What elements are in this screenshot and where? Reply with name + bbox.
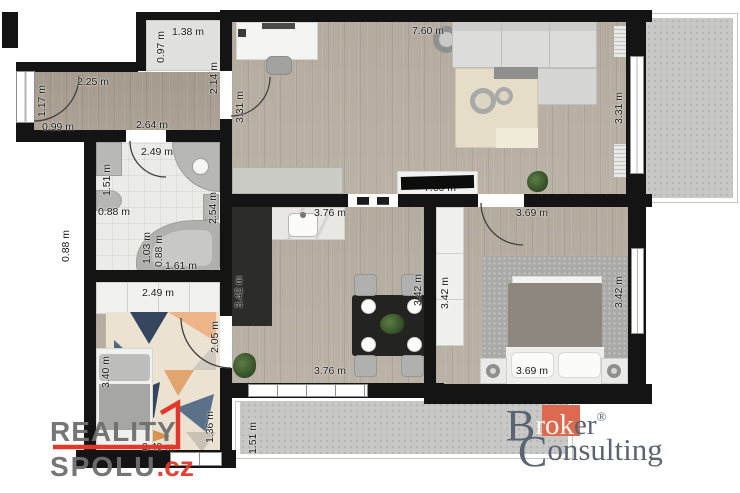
wardrobe-master [436, 206, 464, 346]
entry-door [16, 71, 35, 123]
plant-living [527, 171, 548, 192]
balcony-top-right [646, 14, 737, 202]
passage-kitchen [348, 194, 398, 207]
bathroom-sink [96, 190, 122, 211]
wall-bath-bedroom2 [84, 270, 232, 282]
reality-spolu-logo: REALITY SPOLU.cz [50, 418, 194, 481]
shower-head [192, 158, 209, 175]
bed-blanket [508, 283, 602, 349]
sofa-chaise [537, 68, 597, 105]
dining-chair [354, 274, 377, 296]
table-centerpiece [380, 314, 404, 334]
window-living [630, 56, 644, 174]
wall-stub-topleft [2, 12, 18, 48]
reality-spolu-line1: REALITY [50, 418, 194, 446]
desk-chair [266, 56, 292, 75]
window-bedroom [631, 248, 644, 334]
desk-monitor [262, 23, 295, 29]
broker-consulting-logo: Broker® Consulting [498, 402, 698, 482]
bathroom-washer [203, 194, 219, 220]
kitchen-faucet [300, 212, 306, 218]
registered-mark: ® [597, 410, 607, 423]
storage-room-floor [146, 20, 224, 71]
radiator-bottom [614, 144, 626, 177]
sofa [452, 17, 597, 68]
pillow [558, 352, 601, 378]
plate [407, 299, 422, 314]
wall-bedroom-left [424, 194, 436, 394]
pillow [511, 352, 554, 378]
plant-dining [233, 353, 256, 378]
floor-plan: 1.38 m0.97 m2.25 m1.17 m0.99 m2.64 m2.14… [0, 0, 740, 493]
dining-chair [401, 355, 424, 377]
wall-living-dining [222, 194, 652, 207]
nightstand-lamp [486, 364, 500, 378]
living-cabinet [232, 167, 343, 194]
door-living [220, 71, 232, 119]
reality-spolu-line2: SPOLU.cz [50, 453, 194, 481]
decor-bowl-large [470, 88, 496, 114]
nightstand-lamp [607, 364, 621, 378]
dining-chair [354, 355, 377, 377]
wall-bathroom-top-left [16, 130, 126, 142]
coffee-table-throw [496, 128, 538, 148]
plate [361, 337, 376, 352]
trash-bin [238, 29, 246, 37]
radiator-top [614, 26, 626, 57]
plate [407, 337, 422, 352]
wardrobe-bedroom2 [96, 282, 220, 314]
dining-chair [401, 274, 424, 296]
kitchen-counter-dark [232, 207, 272, 326]
hallway-floor [34, 72, 222, 131]
door-bedroom [478, 194, 524, 207]
wall-bedroom-bottom [424, 384, 652, 404]
wall-top [222, 10, 652, 22]
broker-consulting-line2: Consulting [518, 430, 663, 474]
decor-bowl-small [495, 87, 513, 105]
door-bathroom [126, 130, 166, 142]
wall-storage-top [136, 12, 226, 20]
bed2-pillow [99, 354, 150, 381]
plate [361, 299, 376, 314]
bathroom-cabinet [96, 142, 122, 176]
tv [401, 175, 474, 190]
coffee-table-tray [494, 67, 538, 79]
reality-spolu-tld: .cz [156, 451, 193, 482]
dimension-label: 0.88 m [61, 230, 72, 262]
balcony-door-dining [248, 384, 368, 397]
door-bedroom2 [220, 316, 232, 368]
